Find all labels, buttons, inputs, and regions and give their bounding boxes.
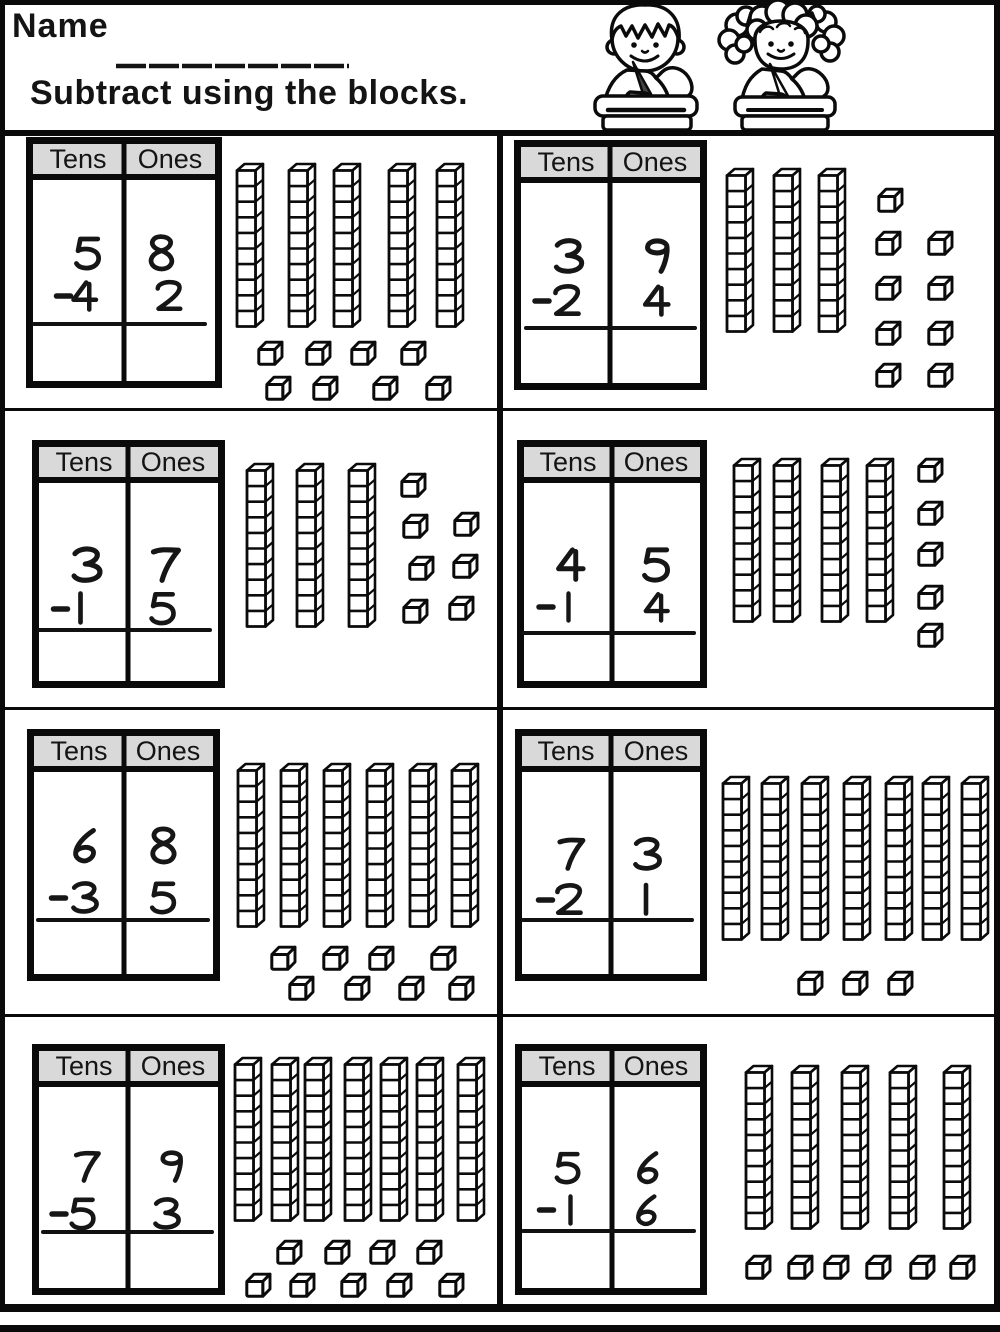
svg-text:Ones: Ones — [624, 736, 689, 766]
svg-text:Ones: Ones — [136, 736, 201, 766]
svg-text:Ones: Ones — [624, 447, 689, 477]
svg-text:Tens: Tens — [49, 144, 106, 174]
svg-text:Tens: Tens — [538, 1051, 595, 1081]
svg-text:Tens: Tens — [537, 147, 594, 177]
svg-text:Tens: Tens — [50, 736, 107, 766]
svg-text:Ones: Ones — [623, 147, 688, 177]
svg-text:Ones: Ones — [624, 1051, 689, 1081]
svg-text:Ones: Ones — [141, 447, 206, 477]
svg-text:Name: Name — [12, 7, 109, 45]
svg-text:Tens: Tens — [537, 736, 594, 766]
svg-text:Ones: Ones — [141, 1051, 206, 1081]
svg-text:Ones: Ones — [138, 144, 203, 174]
svg-text:Tens: Tens — [55, 447, 112, 477]
svg-text:Tens: Tens — [55, 1051, 112, 1081]
svg-text:Tens: Tens — [539, 447, 596, 477]
svg-text:Subtract using the blocks.: Subtract using the blocks. — [30, 74, 468, 112]
